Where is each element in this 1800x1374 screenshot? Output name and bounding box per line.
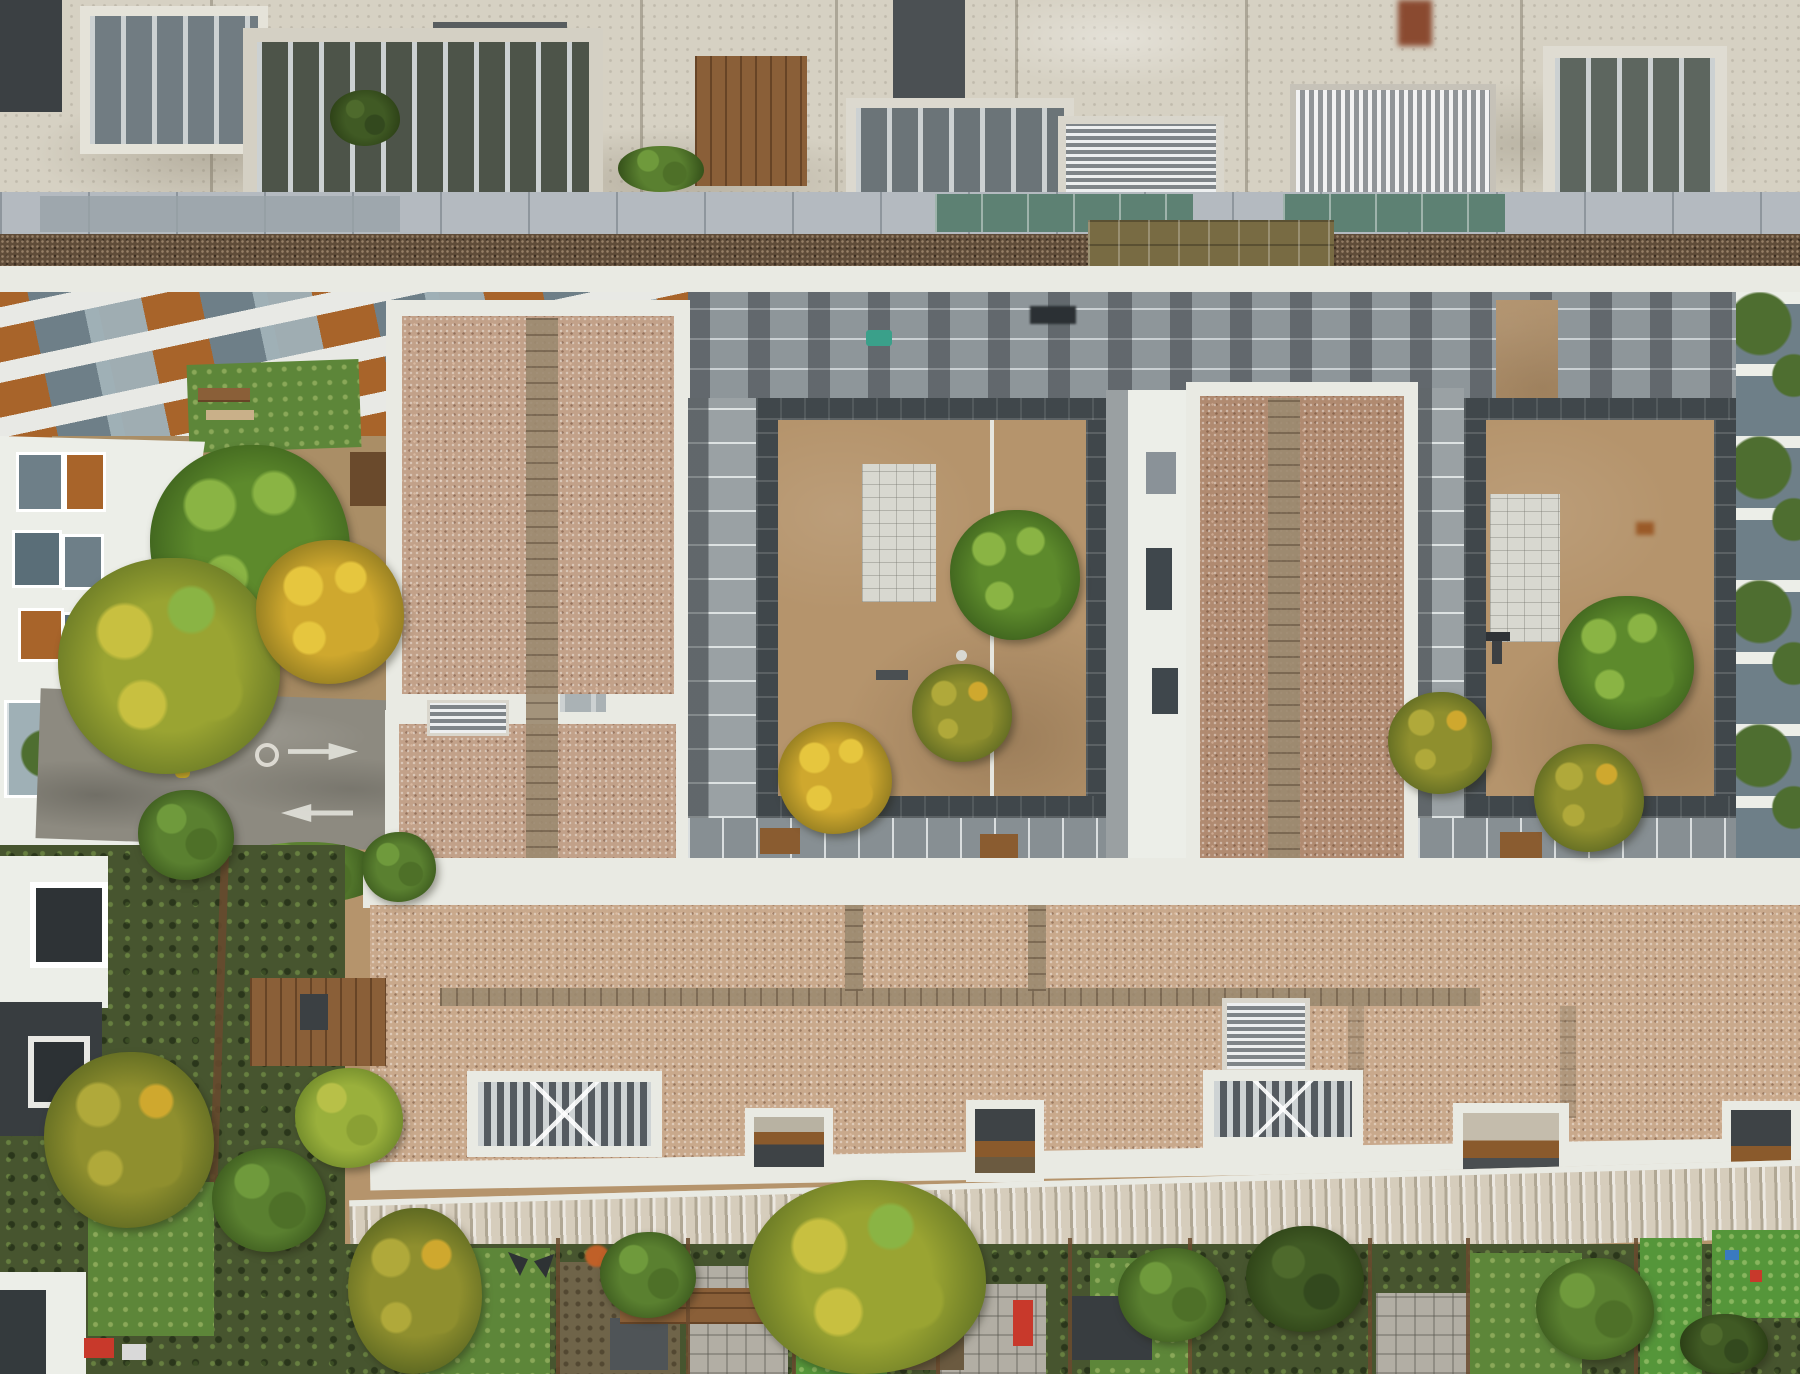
road-circle-mark — [255, 743, 279, 767]
east-balcony-strip — [1736, 292, 1800, 880]
dark-roof-panel — [0, 0, 62, 112]
south-roof-paver-spur — [845, 905, 863, 991]
tree-green-courtyard-east — [1558, 596, 1694, 730]
central-roof-vent — [427, 700, 509, 736]
courtyard-east-north-spur — [1496, 300, 1558, 404]
gravel-roof-east — [1186, 382, 1418, 882]
courtyard-east-paving — [1490, 494, 1560, 642]
pergola-grille-east — [1203, 1070, 1363, 1148]
courtyard-east-border-north — [1464, 398, 1736, 420]
garden-fence — [1068, 1238, 1072, 1374]
tree-lime-plaza — [58, 558, 280, 774]
roof-grille-2 — [243, 28, 603, 212]
roof-ladder — [560, 694, 606, 712]
deck-table-teal — [866, 330, 892, 346]
courtyard-lamp-head — [1486, 632, 1510, 641]
rust-spot — [1636, 522, 1654, 535]
tree-yellow-courtyard-west — [778, 722, 892, 834]
bush-garden-2 — [1118, 1248, 1226, 1342]
garden-fence — [1368, 1238, 1372, 1374]
courtyard-west-border-north — [756, 398, 1108, 420]
bush-garden-1 — [600, 1232, 696, 1318]
bush-lime-southwest — [295, 1068, 403, 1168]
tree-olive-courtyard-east-1 — [1388, 692, 1492, 794]
west-building-panel — [64, 452, 106, 512]
tree-olive-courtyard-east-2 — [1534, 744, 1644, 852]
bush-northwest — [138, 790, 234, 880]
grille-planting — [330, 90, 400, 146]
deck-planting — [618, 146, 704, 192]
courtyard-manhole — [956, 650, 967, 661]
roof-corrugated-vent — [1290, 84, 1496, 206]
gallery-wood-glimpse — [1500, 832, 1542, 858]
courtyard-west-paving — [862, 464, 936, 602]
lawn-bench-2 — [206, 410, 254, 420]
parapet-band-north — [0, 266, 1800, 292]
skylight-gray — [40, 196, 400, 232]
tree-lime-garden — [748, 1180, 986, 1374]
mid-building-window — [1152, 668, 1178, 714]
central-roof-paver-path — [526, 318, 558, 864]
mid-building-concrete-edge — [1106, 390, 1128, 882]
garden-patio — [1376, 1293, 1478, 1374]
garden-white-item — [122, 1344, 146, 1360]
bush-garden-4 — [1536, 1258, 1654, 1360]
gallery-wood-glimpse — [980, 834, 1018, 858]
bush-southwest — [212, 1148, 326, 1252]
house-roof-south — [0, 1290, 46, 1374]
roof-joint — [835, 0, 838, 192]
tree-green-courtyard-west — [950, 510, 1080, 640]
garden-shed — [610, 1318, 668, 1370]
pergola-grille-west — [467, 1071, 662, 1157]
courtyard-bench — [876, 670, 908, 680]
bush-garden-5 — [1680, 1314, 1768, 1374]
west-lawn — [187, 359, 362, 453]
rust-stain — [1398, 0, 1432, 46]
mid-building-window — [1146, 452, 1176, 494]
east-roof-paver-path — [1268, 398, 1300, 866]
south-roof-paver-spur — [1028, 905, 1046, 991]
roof-joint — [1245, 0, 1248, 192]
aerial-photo — [0, 0, 1800, 1374]
roof-wood-deck — [695, 56, 807, 186]
south-roof-paver-spur — [1560, 1006, 1576, 1118]
tree-yellow-plaza — [256, 540, 404, 684]
deck-bicycles — [1030, 306, 1076, 324]
parapet-band-south — [363, 858, 1800, 908]
garden-red-item — [84, 1338, 114, 1358]
tree-olive-courtyard-west — [912, 664, 1012, 762]
eaves-notch-1 — [745, 1108, 833, 1176]
west-building-window — [16, 452, 64, 512]
mid-building-window — [1146, 548, 1172, 610]
roof-joint — [1520, 0, 1523, 192]
bush-garden-3 — [1246, 1226, 1364, 1332]
garden-toy — [1725, 1250, 1739, 1260]
tree-olive-garden-west — [348, 1208, 482, 1374]
bush-road-end — [362, 832, 436, 902]
garden-fence — [1466, 1238, 1470, 1374]
west-building-window — [12, 530, 62, 588]
south-roof-paver-path — [440, 988, 1480, 1006]
south-roof-vent — [1222, 998, 1310, 1074]
house-window-slab — [30, 882, 108, 968]
roof-grille-1 — [80, 6, 268, 154]
courtyard-west-border-east — [1086, 420, 1108, 818]
courtyard-east-border-east — [1714, 420, 1736, 818]
garden-toy — [1750, 1270, 1762, 1282]
garden-fence — [556, 1238, 560, 1374]
tree-olive-southwest — [44, 1052, 214, 1228]
deck-grill — [300, 994, 328, 1030]
lawn-bench-1 — [198, 388, 250, 402]
eaves-notch-2 — [966, 1100, 1044, 1182]
courtyard-west-border-west — [756, 420, 778, 818]
gallery-wood-glimpse — [760, 828, 800, 854]
courtyard-west-gallery-west — [688, 398, 756, 818]
sedum-strip — [0, 234, 1800, 266]
west-building-panel — [18, 608, 64, 662]
garden-red-bench — [1013, 1300, 1033, 1346]
